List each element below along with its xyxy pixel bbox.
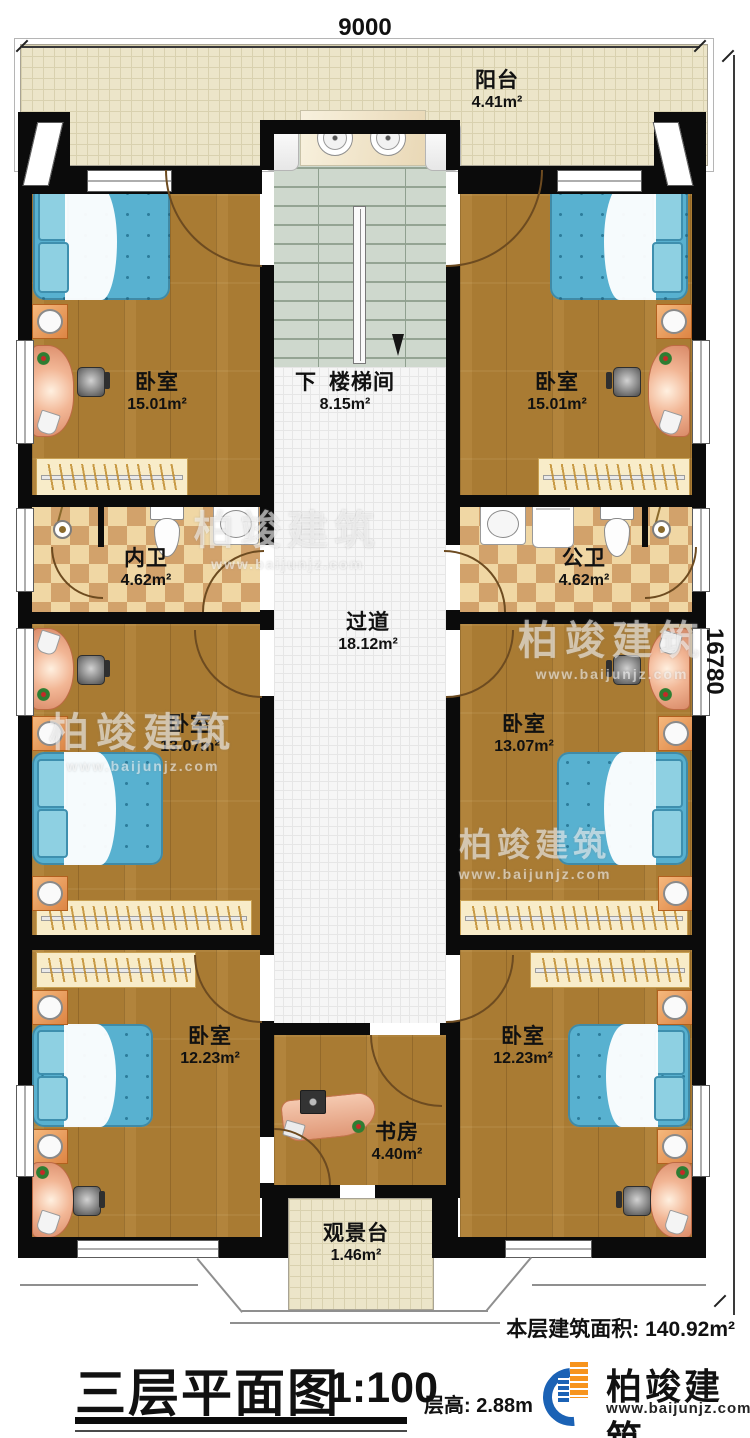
terrace-edge [20, 1284, 198, 1286]
stair-direction-arrow [392, 334, 404, 356]
porch-step [242, 1310, 488, 1312]
desk-chair [77, 655, 105, 685]
window [505, 1240, 592, 1258]
bed-sheet [606, 1024, 658, 1127]
room-label-study: 书房4.40m² [352, 1120, 442, 1164]
dimension-line-top [22, 46, 700, 48]
bathroom-sink [480, 503, 526, 545]
bed-sheet [64, 752, 116, 865]
bed [568, 1024, 690, 1127]
bathroom-sink [213, 503, 259, 545]
monitor [104, 372, 110, 389]
floor-plan-canvas: 9000 16780 阳台4.41m² 卧室15.01m² 卧室15.01m² … [0, 0, 750, 1438]
shower-partition-wall [98, 507, 104, 547]
window [16, 340, 34, 444]
wall [260, 610, 274, 630]
bed [550, 183, 688, 300]
corridor-floor [274, 367, 446, 1023]
monitor [99, 1191, 105, 1208]
window [77, 1240, 219, 1258]
bed [33, 183, 170, 300]
room-label-bedroom-bottom-right: 卧室12.23m² [478, 1024, 568, 1068]
room-label-bedroom-top-right: 卧室15.01m² [512, 370, 602, 414]
wall [440, 1023, 446, 1035]
desk-chair [73, 1186, 101, 1216]
wall [18, 935, 260, 950]
nightstand [658, 716, 694, 751]
dimension-line-right [733, 55, 735, 1315]
wardrobe [36, 952, 196, 988]
logo-building-blue [558, 1374, 569, 1402]
wall [18, 495, 260, 507]
floor-area-note: 本层建筑面积: 140.92m² [505, 1313, 735, 1343]
monitor [616, 1191, 622, 1208]
plant-icon [37, 688, 50, 701]
company-name: 柏竣建筑 [606, 1358, 750, 1438]
title-underline-thick [75, 1417, 407, 1424]
nightstand [32, 990, 68, 1025]
window [557, 170, 642, 192]
dimension-top-value: 9000 [325, 14, 405, 42]
desk-chair [77, 367, 105, 397]
company-logo-icon [543, 1358, 601, 1418]
window [692, 340, 710, 444]
wardrobe [538, 458, 690, 496]
dimension-tick [714, 1295, 727, 1308]
nightstand [32, 304, 68, 339]
window [16, 628, 34, 716]
nightstand [32, 1129, 68, 1164]
window [692, 1085, 710, 1177]
bed [32, 1024, 153, 1127]
stair-direction-label: 下 [295, 371, 317, 394]
room-label-bath-inner: 内卫4.62m² [101, 546, 191, 590]
porch-line [196, 1258, 243, 1313]
wall [446, 935, 706, 950]
room-label-bedroom-mid-left: 卧室13.07m² [145, 712, 235, 756]
wardrobe [460, 900, 688, 936]
wall [446, 495, 706, 507]
nightstand [656, 304, 692, 339]
porch-step [230, 1322, 500, 1324]
wall [260, 120, 460, 134]
room-label-corridor: 过道18.12m² [323, 610, 413, 654]
nightstand [657, 1129, 693, 1164]
porch-line [485, 1257, 532, 1312]
wall [260, 134, 274, 170]
scale-label: 1:100 [328, 1364, 438, 1413]
desk-chair [623, 1186, 651, 1216]
plant-icon [676, 1166, 689, 1179]
logo-building-orange [570, 1362, 588, 1398]
plant-icon [37, 352, 50, 365]
wardrobe [36, 458, 188, 496]
shower-partition-wall [642, 507, 648, 547]
wall [260, 1021, 274, 1137]
bed [557, 752, 688, 865]
page-title: 三层平面图 [75, 1352, 340, 1426]
terrace-edge [532, 1284, 706, 1286]
wall [260, 265, 274, 545]
room-label-stairwell: 下楼梯间 8.15m² [275, 370, 415, 414]
monitor [104, 660, 110, 677]
window [16, 508, 34, 592]
wall [274, 1023, 370, 1035]
wall [375, 1185, 446, 1198]
wall [260, 1185, 340, 1198]
washing-machine [532, 500, 574, 548]
room-label-bedroom-top-left: 卧室15.01m² [112, 370, 202, 414]
company-website: www.baijunjz.com [606, 1400, 750, 1417]
shower-head [652, 520, 671, 539]
nightstand [658, 876, 694, 911]
desk-chair [613, 655, 641, 685]
wall [260, 696, 274, 955]
wardrobe [36, 900, 252, 936]
plant-icon [659, 352, 672, 365]
bed-sheet [604, 183, 656, 300]
nightstand [32, 876, 68, 911]
desk-chair [613, 367, 641, 397]
bed-sheet [65, 183, 117, 300]
window [87, 170, 172, 192]
wall [262, 1198, 288, 1258]
floor-height-label: 层高: 2.88m [424, 1389, 533, 1418]
plant-icon [36, 1166, 49, 1179]
wall [432, 1198, 458, 1258]
room-label-view-deck: 观景台1.46m² [311, 1221, 401, 1265]
nightstand [657, 990, 693, 1025]
wall [446, 612, 706, 624]
nightstand [32, 716, 68, 751]
wall [446, 696, 460, 955]
monitor [606, 372, 612, 389]
room-label-balcony: 阳台4.41m² [452, 68, 542, 112]
stair-rail [353, 206, 366, 364]
title-underline-thin [75, 1430, 407, 1432]
room-label-bath-public: 公卫4.62m² [539, 546, 629, 590]
shower-head [53, 520, 72, 539]
monitor [606, 660, 612, 677]
bed [32, 752, 163, 865]
room-label-bedroom-mid-right: 卧室13.07m² [479, 712, 569, 756]
study-monitor [300, 1090, 326, 1114]
room-label-bedroom-bottom-left: 卧室12.23m² [165, 1024, 255, 1068]
plant-icon [659, 688, 672, 701]
wall [446, 134, 460, 170]
wardrobe [530, 952, 690, 988]
dimension-right-value: 16780 [700, 628, 728, 695]
window [16, 1085, 34, 1177]
bed-sheet [604, 752, 656, 865]
wall [18, 612, 260, 624]
bed-sheet [64, 1024, 116, 1127]
wall [446, 1021, 460, 1198]
